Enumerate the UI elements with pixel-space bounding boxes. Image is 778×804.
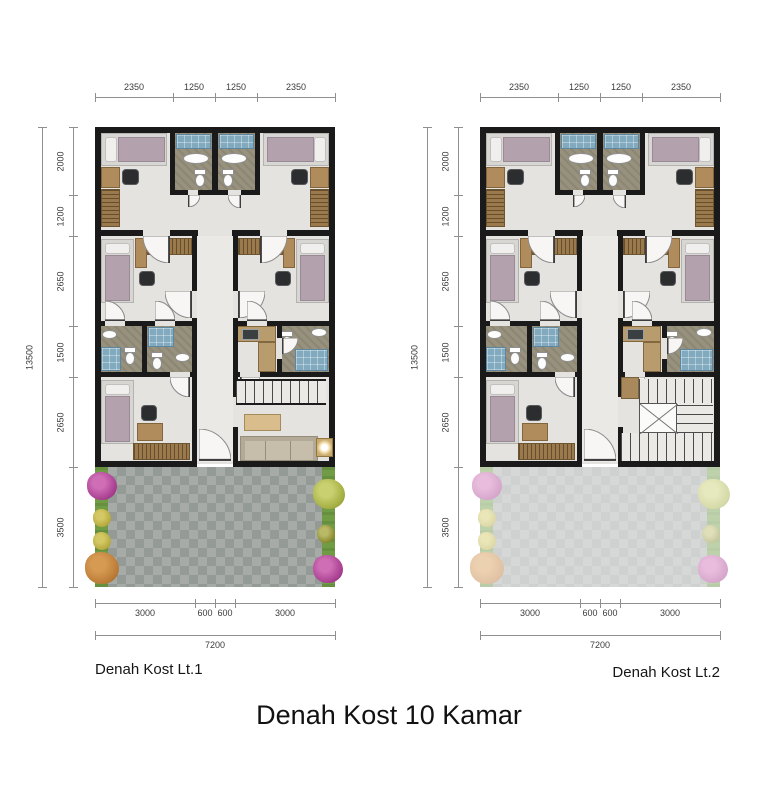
courtyard [95, 467, 335, 587]
dimension-label: 13500 [410, 328, 421, 388]
plant [698, 479, 730, 509]
wall [555, 133, 560, 195]
dim-tick [454, 236, 463, 237]
dimension-label: 2350 [656, 82, 706, 93]
dimension-label: 2000 [56, 132, 67, 192]
desk [522, 423, 548, 441]
dimension-label: 3000 [645, 608, 695, 619]
dim-tick [257, 93, 258, 102]
door-arc [228, 195, 241, 208]
door-arc [645, 236, 672, 263]
dim-tick [335, 93, 336, 102]
sink [221, 153, 247, 164]
wall [555, 190, 573, 195]
wall [480, 461, 580, 467]
wall [527, 326, 532, 372]
wardrobe [310, 189, 329, 227]
dim-tick [454, 326, 463, 327]
pillow [685, 243, 710, 254]
dimension-label: 1250 [596, 82, 646, 93]
dimension-label: 7200 [190, 640, 240, 651]
door-arc [282, 338, 298, 354]
dim-tick [423, 587, 432, 588]
dim-line [73, 127, 74, 587]
plant [478, 509, 496, 527]
paving [108, 467, 322, 587]
pillow [490, 137, 502, 162]
courtyard [480, 467, 720, 587]
pillow [105, 137, 117, 162]
plant [478, 532, 496, 550]
sink [102, 330, 117, 339]
wall [583, 190, 613, 195]
chair [526, 405, 542, 421]
wall [577, 326, 582, 372]
door-arc [584, 429, 616, 461]
dimension-label: 2350 [494, 82, 544, 93]
bed [486, 133, 552, 166]
dim-tick [480, 631, 481, 640]
wall [287, 230, 335, 236]
bed [263, 133, 329, 166]
pillow [105, 384, 130, 395]
door-arc [247, 301, 267, 321]
dim-tick [95, 631, 96, 640]
dimension-label: 1500 [441, 322, 452, 382]
chair [141, 405, 157, 421]
shower [604, 134, 639, 149]
chair [676, 169, 693, 185]
dim-tick [600, 599, 601, 608]
door-arc [667, 338, 683, 354]
wall [662, 326, 667, 338]
door-arc [170, 377, 190, 397]
bed [296, 239, 329, 303]
wall [577, 377, 582, 467]
stairs [639, 379, 713, 403]
dimension-label: 1500 [56, 322, 67, 382]
stairs [236, 379, 326, 405]
toilet-bowl [223, 174, 233, 187]
dim-tick [642, 93, 643, 102]
wall [198, 190, 228, 195]
desk [101, 167, 120, 188]
dim-tick [215, 599, 216, 608]
toilet-bowl [195, 174, 205, 187]
shower [533, 327, 559, 347]
plant [470, 552, 504, 584]
dim-tick [38, 127, 47, 128]
wall [192, 377, 197, 467]
stair-void [639, 403, 677, 433]
plant [702, 525, 720, 543]
wall [170, 190, 188, 195]
sink [568, 153, 594, 164]
dimension-label: 3500 [56, 498, 67, 558]
plant [317, 525, 335, 543]
wall [329, 127, 335, 467]
wall [95, 230, 143, 236]
door-arc [632, 301, 652, 321]
pillow [699, 137, 711, 162]
wall [662, 359, 667, 372]
wall [714, 127, 720, 467]
dim-tick [69, 326, 78, 327]
mattress [267, 137, 314, 162]
dimension-label: 3500 [441, 498, 452, 558]
door-arc [143, 236, 170, 263]
chair [524, 271, 540, 286]
chair [507, 169, 524, 185]
plant [93, 509, 111, 527]
cabinet [621, 377, 639, 399]
wall [241, 190, 260, 195]
toilet-bowl [152, 357, 162, 370]
shower [486, 347, 506, 371]
dim-tick [720, 631, 721, 640]
shower [176, 134, 211, 149]
dim-tick [580, 599, 581, 608]
stairs [621, 433, 713, 461]
pillow [105, 243, 130, 254]
shower [680, 349, 713, 371]
dim-tick [454, 467, 463, 468]
dim-tick [454, 587, 463, 588]
dimension-label: 600 [585, 608, 635, 619]
dim-tick [95, 93, 96, 102]
plant [87, 472, 117, 500]
shower [148, 327, 174, 347]
toilet-bowl [580, 174, 590, 187]
dim-tick [335, 599, 336, 608]
dimension-label: 2650 [441, 252, 452, 312]
stairs [677, 403, 713, 433]
door-arc [573, 195, 585, 207]
kitchen-counter [643, 342, 661, 372]
chair [291, 169, 308, 185]
plant [472, 472, 502, 500]
dim-line [480, 635, 720, 636]
dim-tick [69, 467, 78, 468]
toilet-bowl [608, 174, 618, 187]
dim-tick [423, 127, 432, 128]
wall [480, 372, 555, 377]
wall [672, 230, 720, 236]
bed [101, 239, 134, 303]
wall [235, 461, 335, 467]
sink [183, 153, 209, 164]
dimension-label: 3000 [260, 608, 310, 619]
bed [101, 380, 134, 444]
mattress [503, 137, 550, 162]
toilet [607, 169, 621, 189]
building [95, 127, 335, 587]
kitchen-counter [258, 342, 276, 372]
sink [487, 330, 502, 339]
dim-tick [38, 587, 47, 588]
dimension-label: 3000 [505, 608, 555, 619]
desk [310, 167, 329, 188]
floorplan-lt2: Denah Kost Lt.2 235012501250235020001200… [480, 127, 720, 587]
wall [192, 236, 197, 291]
desk [486, 167, 505, 188]
dimension-label: 2350 [271, 82, 321, 93]
dimension-label: 2350 [109, 82, 159, 93]
wall [233, 427, 238, 467]
dim-tick [69, 587, 78, 588]
dimension-label: 2650 [56, 393, 67, 453]
dim-tick [235, 599, 236, 608]
toilet [509, 347, 523, 367]
coffee-table [244, 414, 281, 431]
mattress [490, 255, 515, 301]
dim-tick [95, 599, 96, 608]
lamp-table [316, 438, 333, 457]
wall [645, 372, 720, 377]
sink [696, 328, 712, 337]
dimension-label: 7200 [575, 640, 625, 651]
wall [95, 127, 101, 467]
building [480, 127, 720, 587]
bed [486, 239, 519, 303]
paving [493, 467, 707, 587]
mattress [490, 396, 515, 442]
page-title: Denah Kost 10 Kamar [0, 700, 778, 731]
dim-tick [335, 631, 336, 640]
wall [597, 133, 603, 195]
dim-line [458, 127, 459, 587]
sink [311, 328, 327, 337]
mattress [652, 137, 699, 162]
door-arc [199, 429, 231, 461]
mattress [300, 255, 325, 301]
dim-tick [454, 127, 463, 128]
wall [577, 236, 582, 291]
plant [313, 555, 343, 583]
door-arc [260, 236, 287, 263]
sink [606, 153, 632, 164]
dim-line [42, 127, 43, 587]
toilet-bowl [510, 352, 520, 365]
floorplan-sheet: Denah Kost Lt.1 235012501250235020001200… [0, 0, 778, 804]
wall [480, 321, 490, 326]
chair [139, 271, 155, 286]
plant [85, 552, 119, 584]
dim-tick [480, 599, 481, 608]
wall [170, 133, 175, 195]
bed [648, 133, 714, 166]
dim-tick [69, 127, 78, 128]
door-arc [490, 301, 510, 321]
wall [95, 372, 170, 377]
wall [212, 133, 218, 195]
door-arc [555, 377, 575, 397]
wall [626, 190, 645, 195]
wall [233, 236, 238, 291]
toilet [536, 352, 550, 372]
wall [95, 321, 105, 326]
toilet [222, 169, 236, 189]
dim-tick [69, 195, 78, 196]
shower [219, 134, 254, 149]
wall [618, 236, 623, 291]
door-arc [188, 195, 200, 207]
mattress [105, 255, 130, 301]
pillow [490, 384, 515, 395]
kitchen-sink [242, 329, 259, 340]
toilet [124, 347, 138, 367]
mattress [118, 137, 165, 162]
dim-tick [454, 195, 463, 196]
wall [233, 326, 238, 372]
mattress [105, 396, 130, 442]
plan-label-lt2: Denah Kost Lt.2 [612, 664, 720, 681]
shower [295, 349, 328, 371]
dimension-label: 2650 [441, 393, 452, 453]
door-arc [155, 301, 175, 321]
wall [277, 359, 282, 372]
dim-tick [720, 599, 721, 608]
dim-tick [720, 93, 721, 102]
sofa [240, 436, 318, 461]
dim-tick [195, 599, 196, 608]
dimension-label: 2000 [441, 132, 452, 192]
wall [260, 372, 335, 377]
dim-tick [454, 377, 463, 378]
dim-tick [173, 93, 174, 102]
wall [640, 133, 645, 195]
wardrobe [101, 189, 120, 227]
dim-tick [558, 93, 559, 102]
toilet [151, 352, 165, 372]
bed [486, 380, 519, 444]
door-arc [105, 301, 125, 321]
mattress [685, 255, 710, 301]
wall [192, 326, 197, 372]
wall [620, 461, 720, 467]
chair [660, 271, 676, 286]
shower [561, 134, 596, 149]
door-arc [540, 301, 560, 321]
wall [480, 127, 486, 467]
dimension-label: 1200 [56, 186, 67, 246]
dim-tick [620, 599, 621, 608]
wardrobe [518, 443, 575, 460]
dimension-label: 600 [200, 608, 250, 619]
kitchen-sink [627, 329, 644, 340]
pillow [300, 243, 325, 254]
wall [618, 326, 623, 372]
dimension-label: 2650 [56, 252, 67, 312]
toilet [579, 169, 593, 189]
dim-tick [215, 93, 216, 102]
desk [137, 423, 163, 441]
sink [175, 353, 190, 362]
dimension-label: 3000 [120, 608, 170, 619]
dim-tick [69, 377, 78, 378]
wall [480, 230, 528, 236]
chair [275, 271, 291, 286]
floorplan-lt1: Denah Kost Lt.1 235012501250235020001200… [95, 127, 335, 587]
door-arc [613, 195, 626, 208]
wardrobe [695, 189, 714, 227]
bed [681, 239, 714, 303]
dimension-label: 1250 [211, 82, 261, 93]
shower [101, 347, 121, 371]
pillow [490, 243, 515, 254]
dim-tick [600, 93, 601, 102]
wardrobe [486, 189, 505, 227]
chair [122, 169, 139, 185]
wardrobe [133, 443, 190, 460]
dimension-label: 13500 [25, 328, 36, 388]
dim-tick [480, 93, 481, 102]
pillow [314, 137, 326, 162]
toilet-bowl [537, 357, 547, 370]
dim-line [95, 635, 335, 636]
bed [101, 133, 167, 166]
door-arc [528, 236, 555, 263]
wall [255, 133, 260, 195]
toilet-bowl [125, 352, 135, 365]
wall [142, 326, 147, 372]
plant [313, 479, 345, 509]
dim-line [427, 127, 428, 587]
wall [95, 461, 195, 467]
dim-tick [69, 236, 78, 237]
plant [93, 532, 111, 550]
wall [510, 321, 540, 326]
wall [277, 326, 282, 338]
wall [125, 321, 155, 326]
plant [698, 555, 728, 583]
toilet [194, 169, 208, 189]
plan-label-lt1: Denah Kost Lt.1 [95, 661, 203, 678]
sink [560, 353, 575, 362]
dimension-label: 1200 [441, 186, 452, 246]
desk [695, 167, 714, 188]
